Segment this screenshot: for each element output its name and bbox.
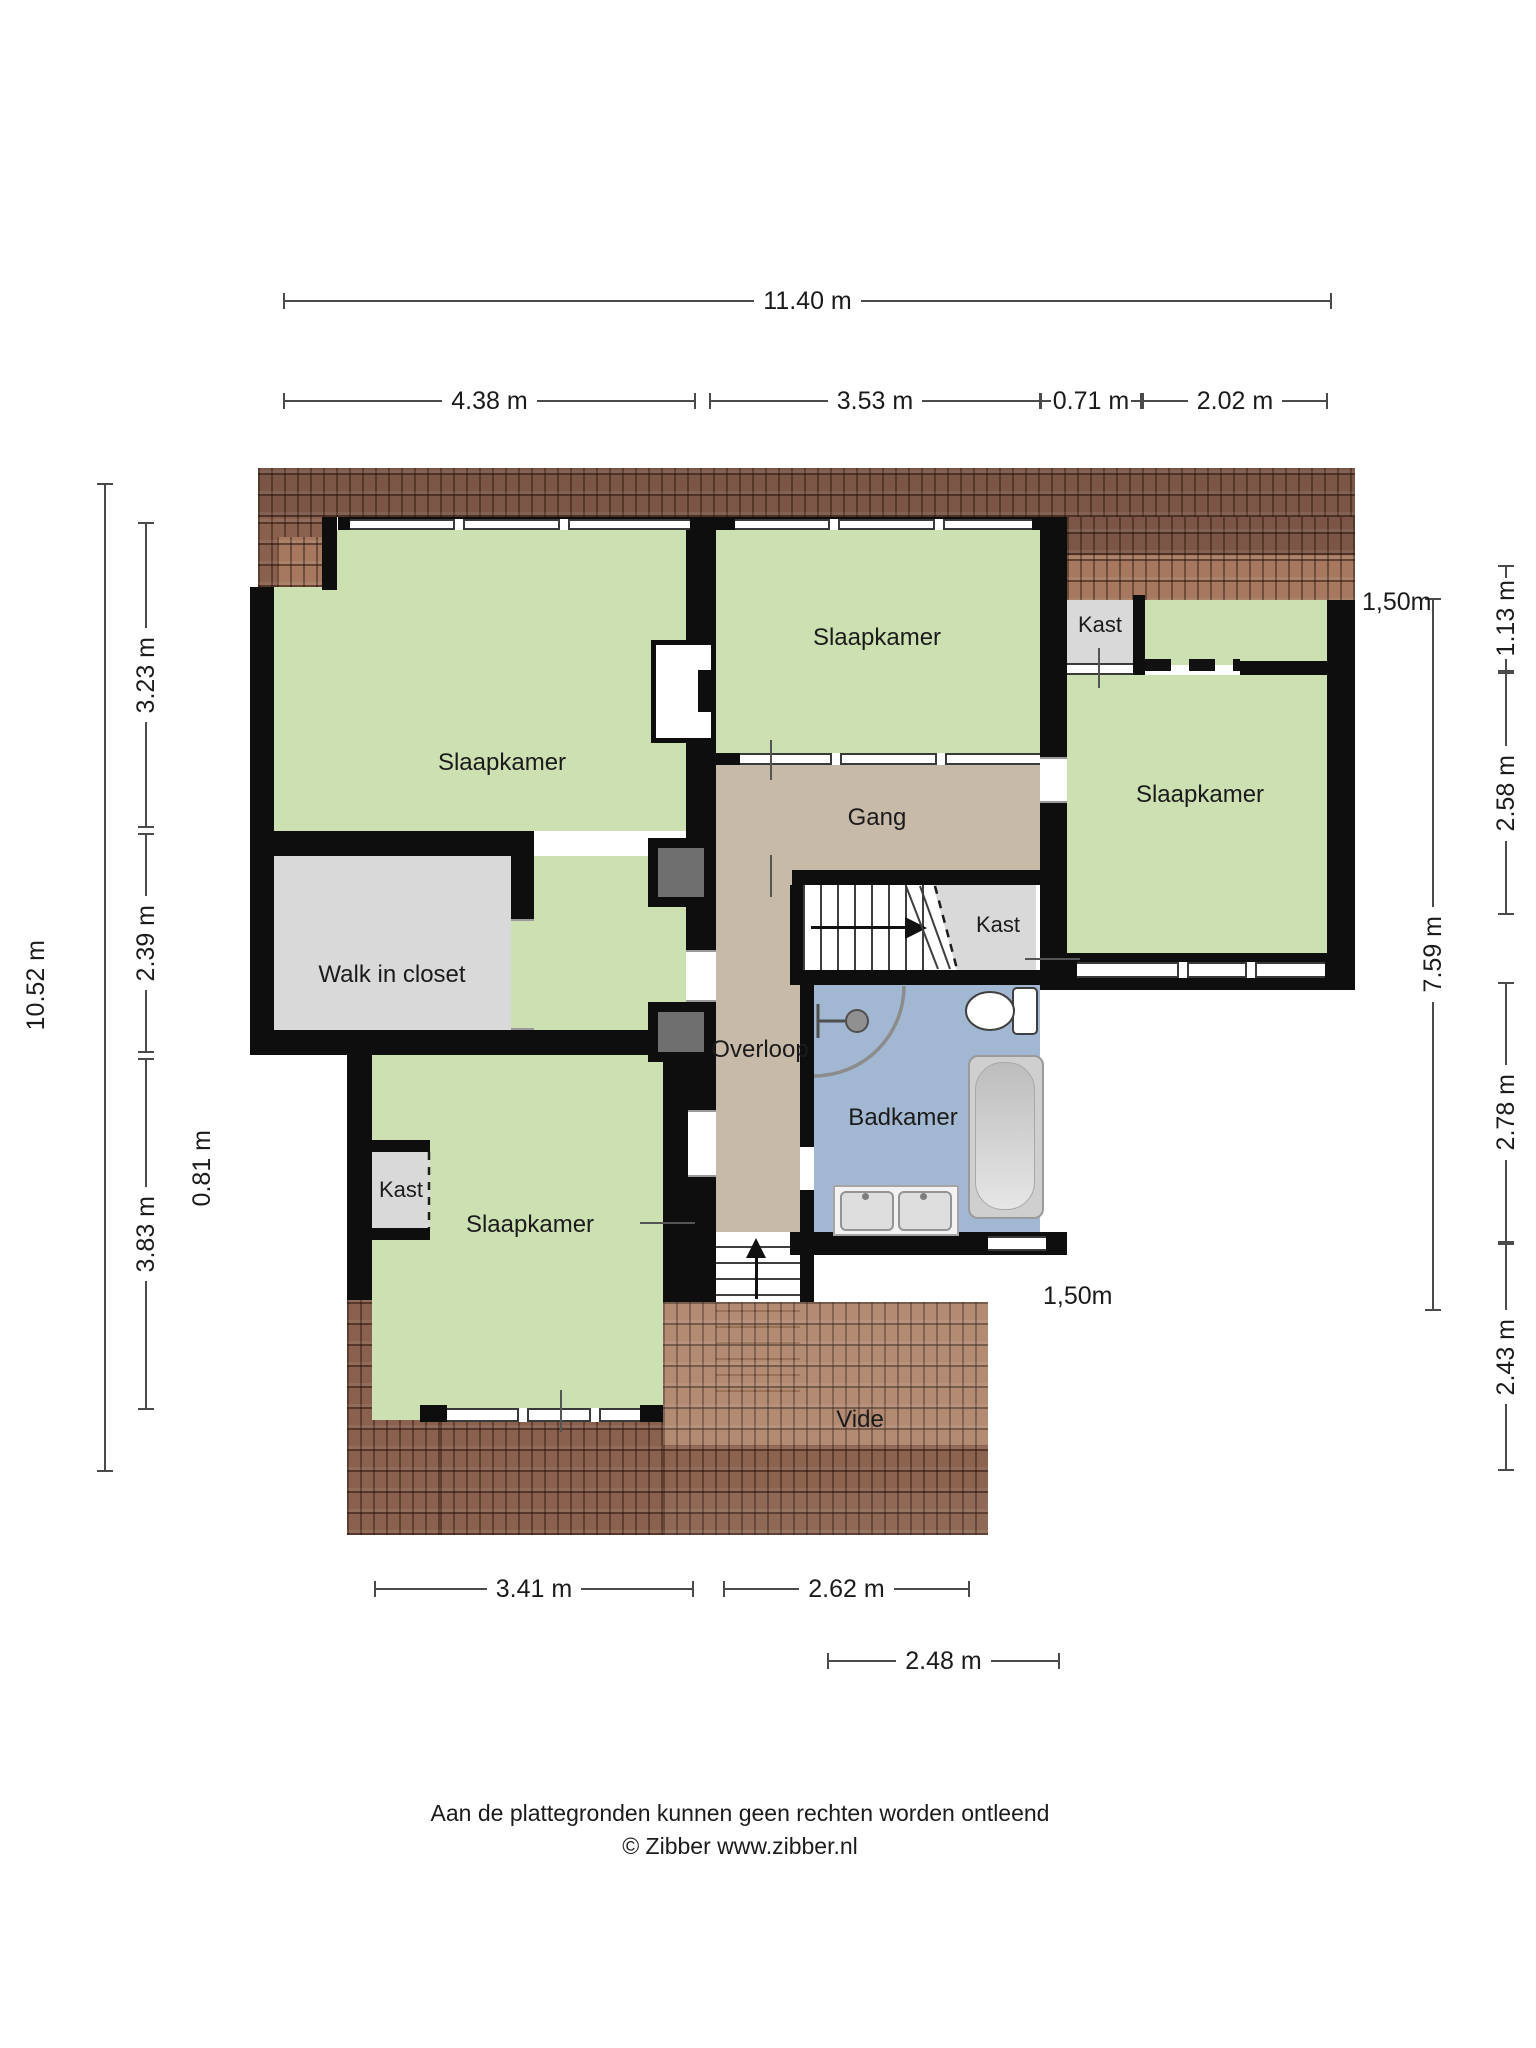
- wall: [511, 831, 534, 919]
- dim-label: 11.40 m: [754, 287, 860, 316]
- dim-top-4: 2.02 m: [1142, 392, 1328, 410]
- door-jamb: [686, 1110, 716, 1112]
- dim-label: 3.41 m: [487, 1575, 581, 1604]
- roof-top-right-light: [1067, 555, 1355, 603]
- wall: [1133, 595, 1145, 675]
- dim-bottom-2: 2.62 m: [723, 1580, 970, 1598]
- partition-mullion: [830, 753, 842, 765]
- dim-left-outer: [96, 483, 114, 1472]
- room-walk-in-closet-floor: [274, 856, 511, 1030]
- opening-jamb: [511, 919, 534, 921]
- roof-vide-lower: [663, 1445, 988, 1535]
- wall: [790, 970, 1040, 985]
- roof-top-right: [1067, 517, 1355, 555]
- wall: [372, 1228, 430, 1240]
- window-mullion: [1245, 962, 1257, 978]
- room-label-kast-bottom-left: Kast: [379, 1177, 423, 1203]
- wall: [420, 1405, 447, 1422]
- kast-top-right-sill: [1067, 663, 1133, 675]
- window-mullion: [933, 519, 945, 530]
- top-middle-bedroom-window: [735, 519, 1032, 530]
- window-mullion: [558, 519, 570, 530]
- dim-top-2: 3.53 m: [709, 392, 1041, 410]
- height-marker-top: 1,50m: [1362, 588, 1431, 617]
- dim-label-left-outer: 10.52 m: [22, 940, 51, 1030]
- dim-left-1: 3.23 m: [137, 522, 155, 828]
- dim-tick: [1025, 958, 1080, 960]
- wall: [686, 743, 716, 838]
- window-mullion: [1177, 962, 1189, 978]
- dim-tick: [640, 1222, 695, 1224]
- dim-tick: [1098, 648, 1100, 688]
- room-label-gang: Gang: [848, 804, 907, 832]
- glazed-partition: [740, 753, 1040, 765]
- dim-label: 2.62 m: [799, 1575, 893, 1604]
- wall: [1327, 600, 1355, 953]
- dim-label: 2.78 m: [1492, 1065, 1521, 1159]
- room-label-walk-in-closet: Walk in closet: [318, 961, 465, 989]
- wall: [790, 885, 803, 970]
- dim-label: 3.83 m: [132, 1187, 161, 1281]
- bathroom-window: [988, 1236, 1046, 1251]
- dim-right-4: 2.43 m: [1497, 1243, 1515, 1471]
- wall: [1240, 661, 1327, 675]
- dim-top-1: 4.38 m: [283, 392, 696, 410]
- wall: [250, 587, 274, 1055]
- dim-label: 3.53 m: [828, 387, 922, 416]
- stair-up-arrow-head-icon: [746, 1238, 766, 1258]
- stair-direction-arrow: [811, 926, 907, 929]
- height-marker-bottom: 1,50m: [1043, 1282, 1112, 1311]
- wall: [716, 753, 740, 765]
- bottom-left-bedroom-window: [447, 1408, 640, 1422]
- wall: [686, 1062, 716, 1110]
- dim-label-left-detached: 0.81 m: [188, 1130, 217, 1206]
- room-label-kast-middle: Kast: [976, 912, 1020, 938]
- partition-mullion: [935, 753, 947, 765]
- room-label-slaapkamer-right: Slaapkamer: [1136, 781, 1264, 809]
- right-bedroom-window: [1077, 962, 1325, 978]
- dim-tick: [770, 855, 772, 897]
- dim-label: 0.71 m: [1051, 387, 1131, 416]
- dim-left-3: 3.83 m: [137, 1058, 155, 1410]
- room-label-slaapkamer-top-middle: Slaapkamer: [813, 624, 941, 652]
- dim-bottom-1: 3.41 m: [374, 1580, 694, 1598]
- room-label-kast-top-right: Kast: [1078, 612, 1122, 638]
- floorplan-canvas: Slaapkamer Slaapkamer Slaapkamer Slaapka…: [0, 0, 1536, 2048]
- dim-label: 2.43 m: [1492, 1310, 1521, 1404]
- room-slaapkamer-top-left-floor: [274, 587, 686, 831]
- room-slaapkamer-top-left-floor: [337, 530, 686, 587]
- dim-right-1: 1.13 m: [1497, 565, 1515, 672]
- bathtub-inner: [975, 1062, 1035, 1210]
- faucet-icon: [862, 1193, 869, 1200]
- wall: [792, 870, 1040, 885]
- door-opening: [686, 1110, 716, 1177]
- dim-tick: [770, 740, 772, 780]
- door-jamb: [686, 950, 716, 952]
- stair-arrow-head-icon: [905, 917, 927, 939]
- opening-jamb: [511, 1028, 534, 1030]
- stair-up-arrow: [755, 1254, 758, 1299]
- footer-disclaimer: Aan de plattegronden kunnen geen rechten…: [0, 1800, 1480, 1827]
- wall: [686, 517, 716, 640]
- top-left-bedroom-window: [350, 519, 690, 530]
- dim-label: 2.48 m: [896, 1647, 990, 1676]
- door-opening: [1040, 757, 1067, 803]
- dim-right-3: 2.78 m: [1497, 982, 1515, 1243]
- room-label-slaapkamer-bottom-left: Slaapkamer: [466, 1211, 594, 1239]
- dim-label: 2.02 m: [1188, 387, 1282, 416]
- wall: [686, 907, 716, 950]
- wall: [250, 1030, 690, 1055]
- dim-tick: [560, 1390, 562, 1432]
- dim-label: 1.13 m: [1492, 578, 1521, 658]
- dim-right-2: 2.58 m: [1497, 672, 1515, 915]
- window-mullion: [517, 1408, 529, 1422]
- wall: [640, 1405, 663, 1422]
- roof-dormer-bottom-band: [440, 1420, 663, 1535]
- wall: [1040, 803, 1067, 990]
- window-mullion: [589, 1408, 601, 1422]
- wall: [1040, 517, 1067, 757]
- dim-top-3: 0.71 m: [1040, 392, 1142, 410]
- window-mullion: [453, 519, 465, 530]
- duct-block: [658, 1012, 704, 1052]
- footer-copyright: © Zibber www.zibber.nl: [0, 1833, 1480, 1860]
- dim-label: 2.39 m: [132, 896, 161, 990]
- wall: [698, 670, 716, 712]
- duct-block: [658, 848, 704, 897]
- room-slaapkamer-right-strip: [1145, 600, 1327, 665]
- door-opening: [686, 950, 716, 1002]
- room-label-overloop: Overloop: [711, 1036, 808, 1064]
- window-mullion: [828, 519, 840, 530]
- wall: [274, 831, 534, 856]
- wall: [372, 1140, 430, 1152]
- wall: [686, 1177, 716, 1302]
- wall: [322, 517, 337, 590]
- dim-overall-width: 11.40 m: [283, 292, 1332, 310]
- room-label-slaapkamer-top-left: Slaapkamer: [438, 749, 566, 777]
- room-slaapkamer-right-floor: [1067, 675, 1327, 953]
- dim-bottom-3: 2.48 m: [827, 1652, 1060, 1670]
- dim-label: 3.23 m: [132, 628, 161, 722]
- dim-label: 7.59 m: [1419, 907, 1448, 1001]
- dim-label: 2.58 m: [1492, 746, 1521, 840]
- dim-left-2: 2.39 m: [137, 833, 155, 1053]
- room-overloop-floor: [716, 870, 792, 885]
- wall: [347, 1055, 372, 1300]
- faucet-icon: [920, 1193, 927, 1200]
- room-label-badkamer: Badkamer: [848, 1104, 957, 1132]
- door-opening: [800, 1147, 814, 1190]
- dim-right-inner: 7.59 m: [1424, 598, 1442, 1311]
- dim-label: 4.38 m: [442, 387, 536, 416]
- wall: [663, 1055, 688, 1302]
- door-jamb: [1040, 757, 1067, 759]
- roof-top-band: [258, 468, 1355, 517]
- wall: [800, 985, 814, 1147]
- room-label-vide: Vide: [836, 1406, 884, 1434]
